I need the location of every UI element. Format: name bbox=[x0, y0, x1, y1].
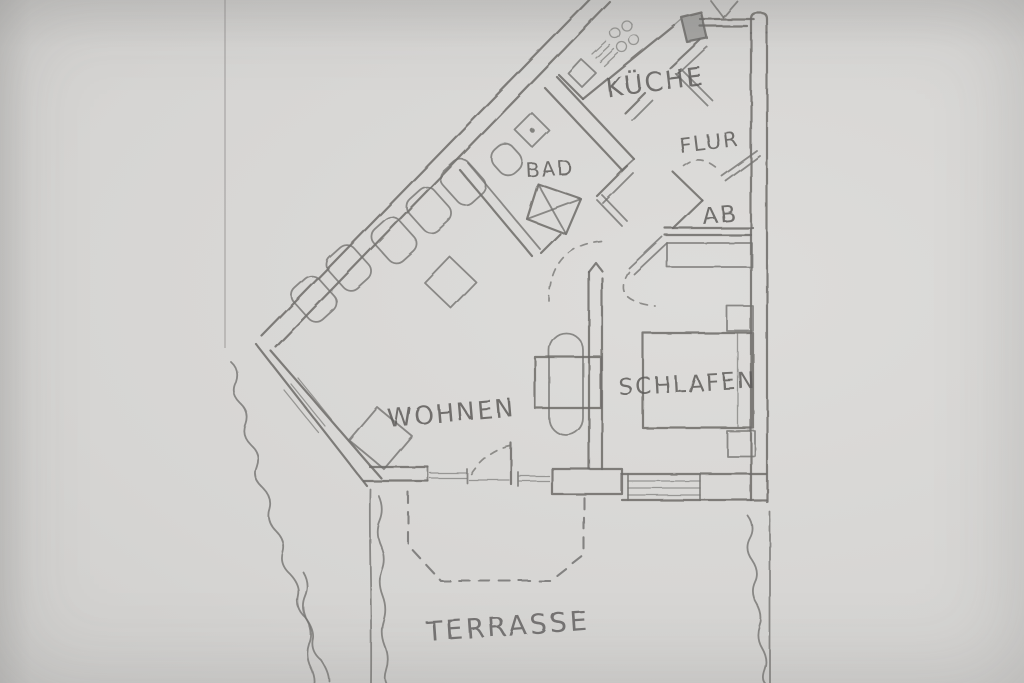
garden-wavy-right bbox=[747, 516, 767, 683]
dishwasher-hatch-icon bbox=[592, 41, 618, 66]
room-label-ab: AB bbox=[701, 201, 739, 230]
toilet-icon bbox=[487, 139, 527, 179]
stove-burners-icon bbox=[610, 21, 639, 52]
storage-door-swing-arc bbox=[684, 160, 719, 170]
terrace-left-wavy bbox=[378, 496, 388, 683]
bedroom-door-swing-arc bbox=[623, 272, 655, 306]
floor-plan-photo: KÜCHE bbox=[0, 0, 1024, 683]
living-area: WOHNEN bbox=[287, 155, 622, 494]
bath-sink-icon bbox=[515, 113, 549, 147]
wall-pier bbox=[552, 469, 622, 494]
terrace-door bbox=[468, 443, 511, 484]
room-label-flur: FLUR bbox=[678, 127, 741, 158]
terrace-outline bbox=[408, 492, 584, 581]
chairs bbox=[549, 333, 583, 435]
dining-table bbox=[535, 357, 601, 408]
kitchen-sink-icon bbox=[568, 59, 596, 87]
terrace-area: TERRASSE bbox=[408, 492, 591, 648]
terrace-left-line bbox=[370, 489, 371, 683]
garden-wavy-left bbox=[231, 362, 329, 681]
bedroom-door-leaf bbox=[629, 237, 667, 274]
side-table bbox=[425, 257, 476, 308]
living-door-swing-arc bbox=[549, 241, 601, 301]
shower-icon bbox=[527, 184, 581, 234]
floor-plan-drawing: KÜCHE bbox=[0, 0, 1024, 683]
nightstand-top bbox=[727, 306, 753, 331]
dining-set bbox=[535, 333, 601, 435]
entrance-door-icon bbox=[711, 1, 737, 17]
storage-door-leaf bbox=[722, 151, 760, 181]
wardrobe bbox=[667, 243, 752, 267]
room-label-terrasse: TERRASSE bbox=[424, 606, 591, 648]
bath-door-leaf bbox=[597, 195, 627, 226]
terrace-door-swing-arc bbox=[468, 446, 510, 479]
garden-wavy-left-short bbox=[303, 572, 315, 683]
room-label-schlafen: SCHLAFEN bbox=[618, 368, 757, 401]
bedroom-area: SCHLAFEN bbox=[589, 237, 766, 500]
room-label-wohnen: WOHNEN bbox=[386, 393, 516, 433]
storage-area: AB bbox=[665, 151, 760, 235]
room-label-bad: BAD bbox=[525, 155, 575, 182]
room-label-kueche: KÜCHE bbox=[604, 60, 707, 104]
